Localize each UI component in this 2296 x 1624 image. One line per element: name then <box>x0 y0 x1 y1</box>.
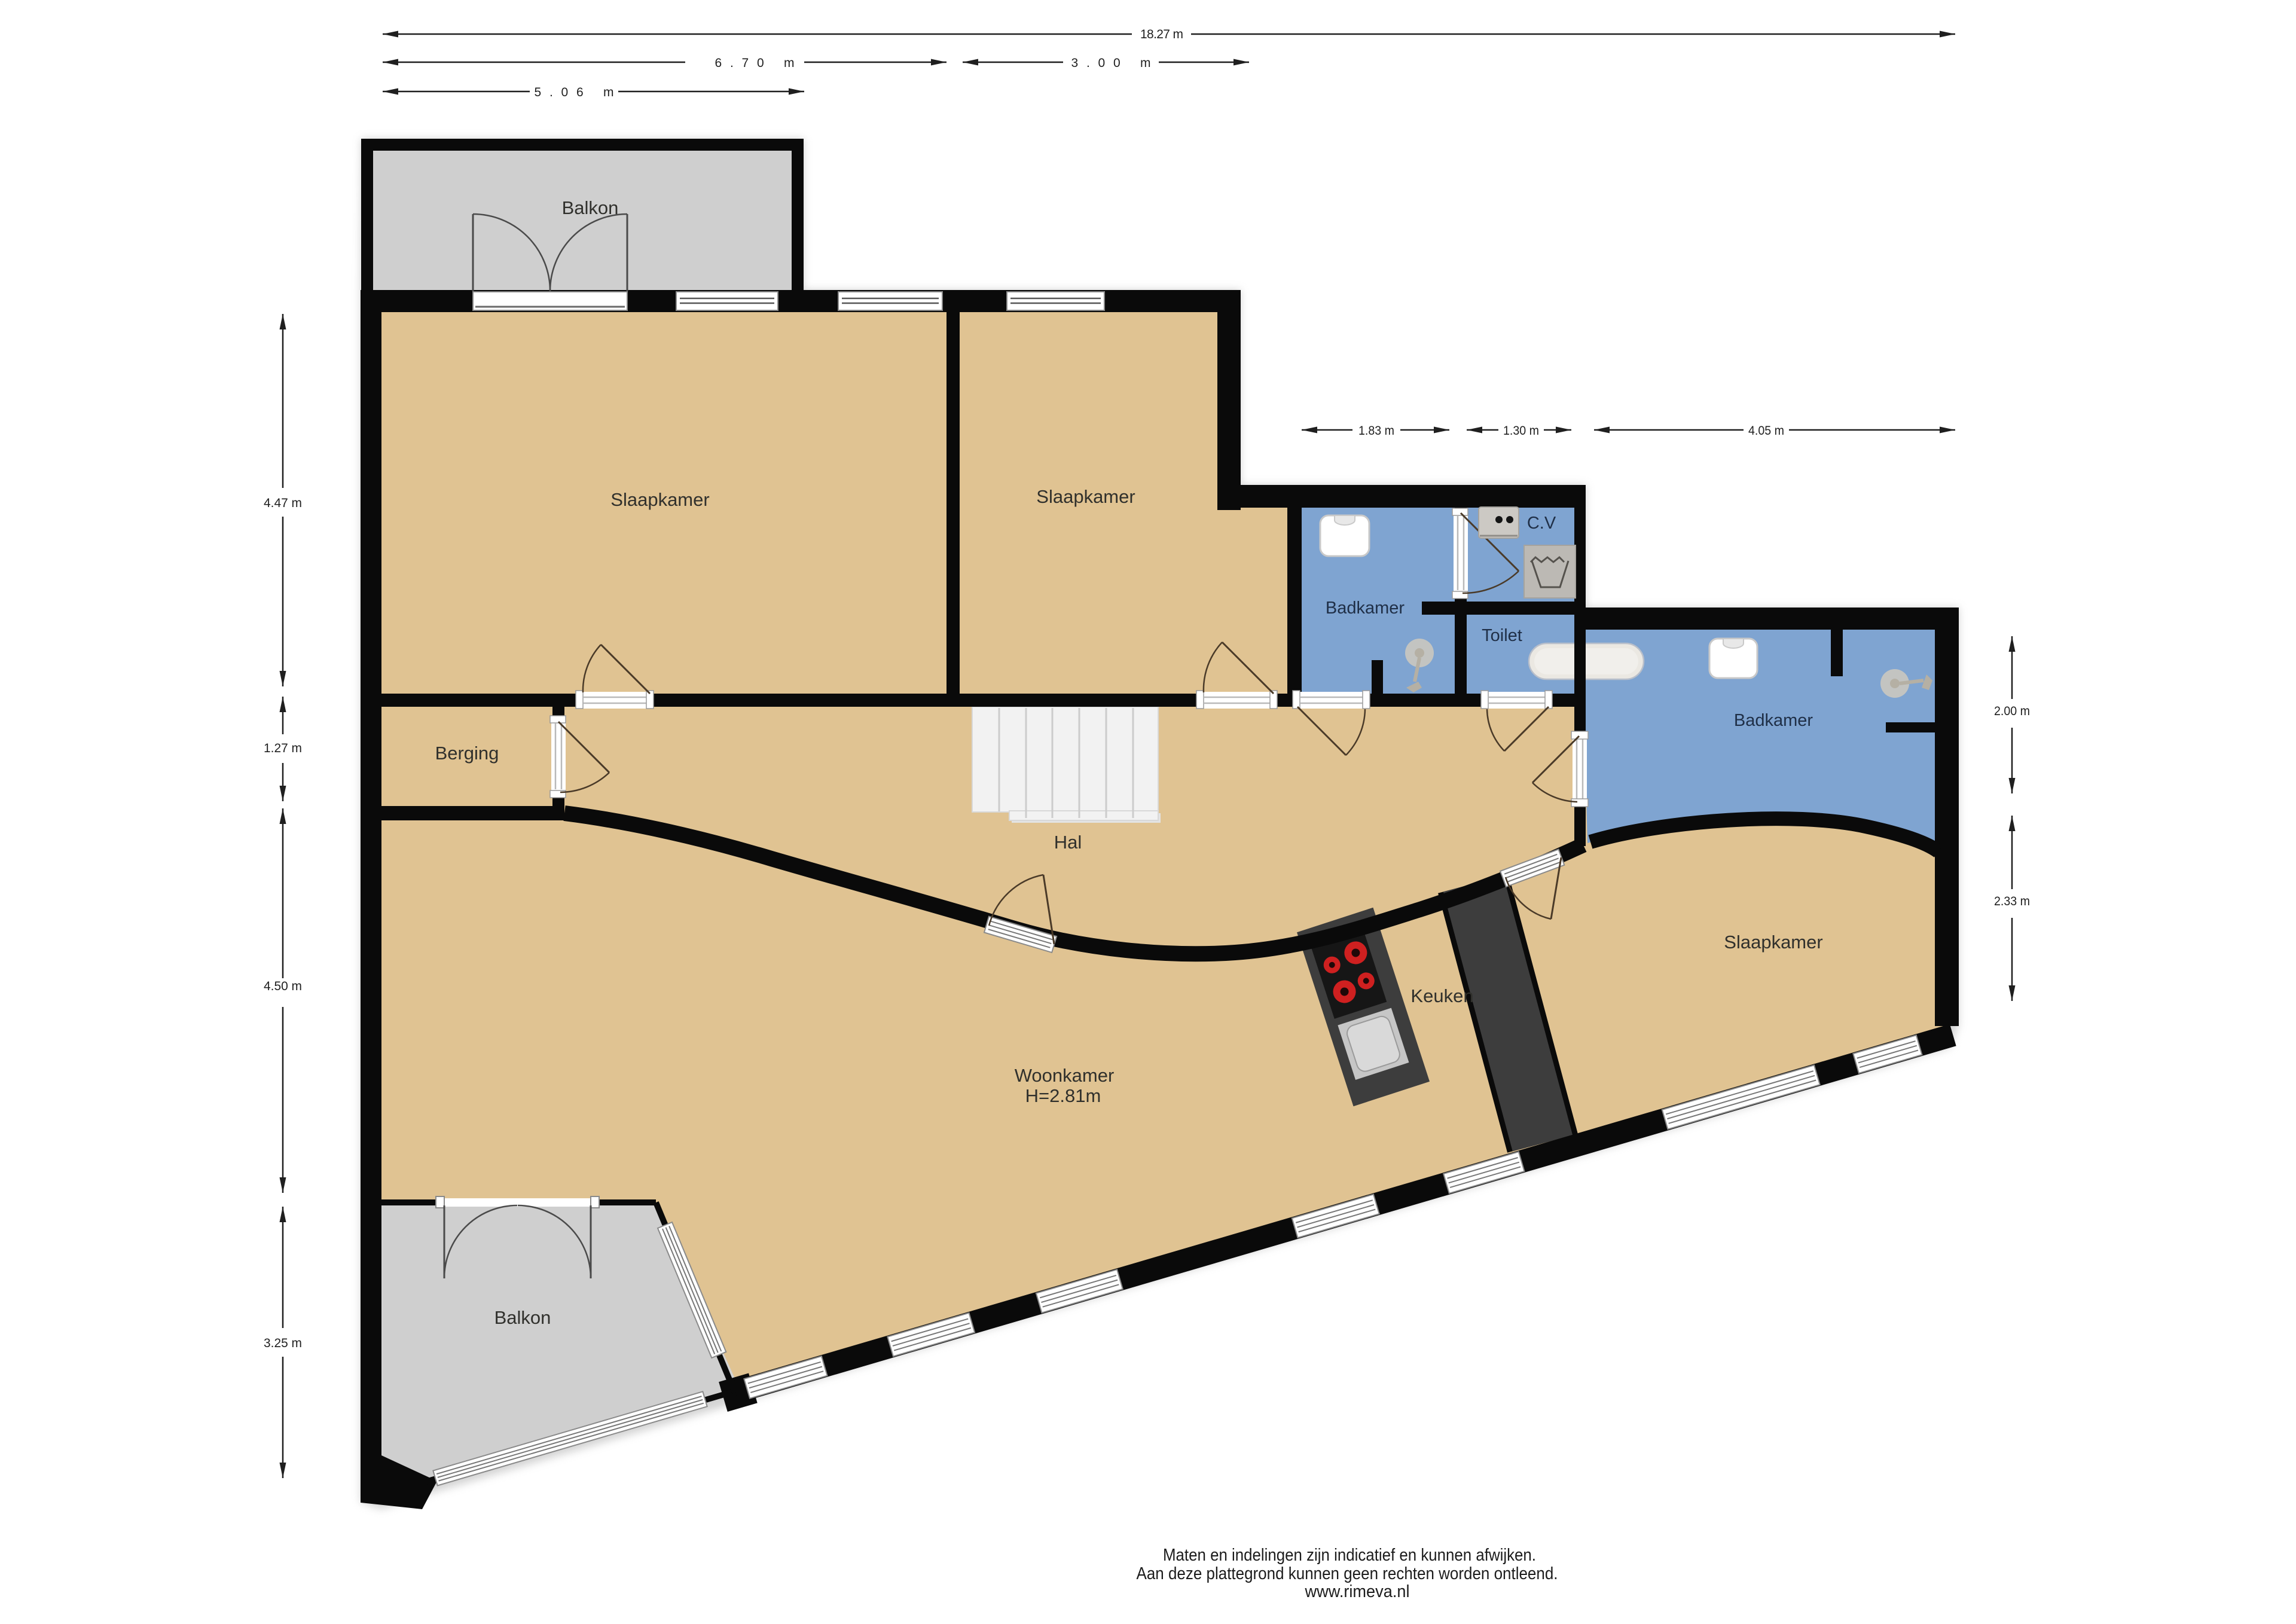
svg-text:Slaapkamer: Slaapkamer <box>1724 932 1822 953</box>
svg-text:C.V: C.V <box>1527 514 1556 533</box>
svg-text:1.30 m: 1.30 m <box>1503 424 1539 438</box>
svg-text:Slaapkamer: Slaapkamer <box>610 489 709 510</box>
svg-text:4.05 m: 4.05 m <box>1748 424 1784 438</box>
svg-text:1.83 m: 1.83 m <box>1358 424 1394 438</box>
svg-text:2.33 m: 2.33 m <box>1994 895 2030 908</box>
svg-text:H=2.81m: H=2.81m <box>1025 1085 1101 1106</box>
svg-text:Keuken: Keuken <box>1410 985 1473 1006</box>
svg-text:Woonkamer: Woonkamer <box>1015 1065 1115 1086</box>
svg-text:www.rimeva.nl: www.rimeva.nl <box>1305 1582 1410 1601</box>
svg-text:4.50 m: 4.50 m <box>264 979 302 993</box>
svg-text:Berging: Berging <box>435 743 499 764</box>
svg-text:Toilet: Toilet <box>1482 626 1522 645</box>
svg-text:4.47 m: 4.47 m <box>264 496 302 510</box>
svg-text:Badkamer: Badkamer <box>1734 711 1813 730</box>
svg-text:Badkamer: Badkamer <box>1326 599 1405 618</box>
svg-text:Aan deze plattegrond kunnen ge: Aan deze plattegrond kunnen geen rechten… <box>1137 1564 1558 1583</box>
svg-text:Slaapkamer: Slaapkamer <box>1036 486 1135 507</box>
svg-text:Balkon: Balkon <box>562 197 619 218</box>
svg-text:2.00 m: 2.00 m <box>1994 704 2030 718</box>
svg-text:18.27 m: 18.27 m <box>1140 28 1183 41</box>
svg-text:Hal: Hal <box>1054 832 1082 853</box>
svg-text:1.27 m: 1.27 m <box>264 741 302 755</box>
svg-text:3.25 m: 3.25 m <box>264 1336 302 1350</box>
svg-text:Balkon: Balkon <box>494 1307 551 1328</box>
svg-text:Maten en indelingen zijn indic: Maten en indelingen zijn indicatief en k… <box>1163 1546 1536 1565</box>
